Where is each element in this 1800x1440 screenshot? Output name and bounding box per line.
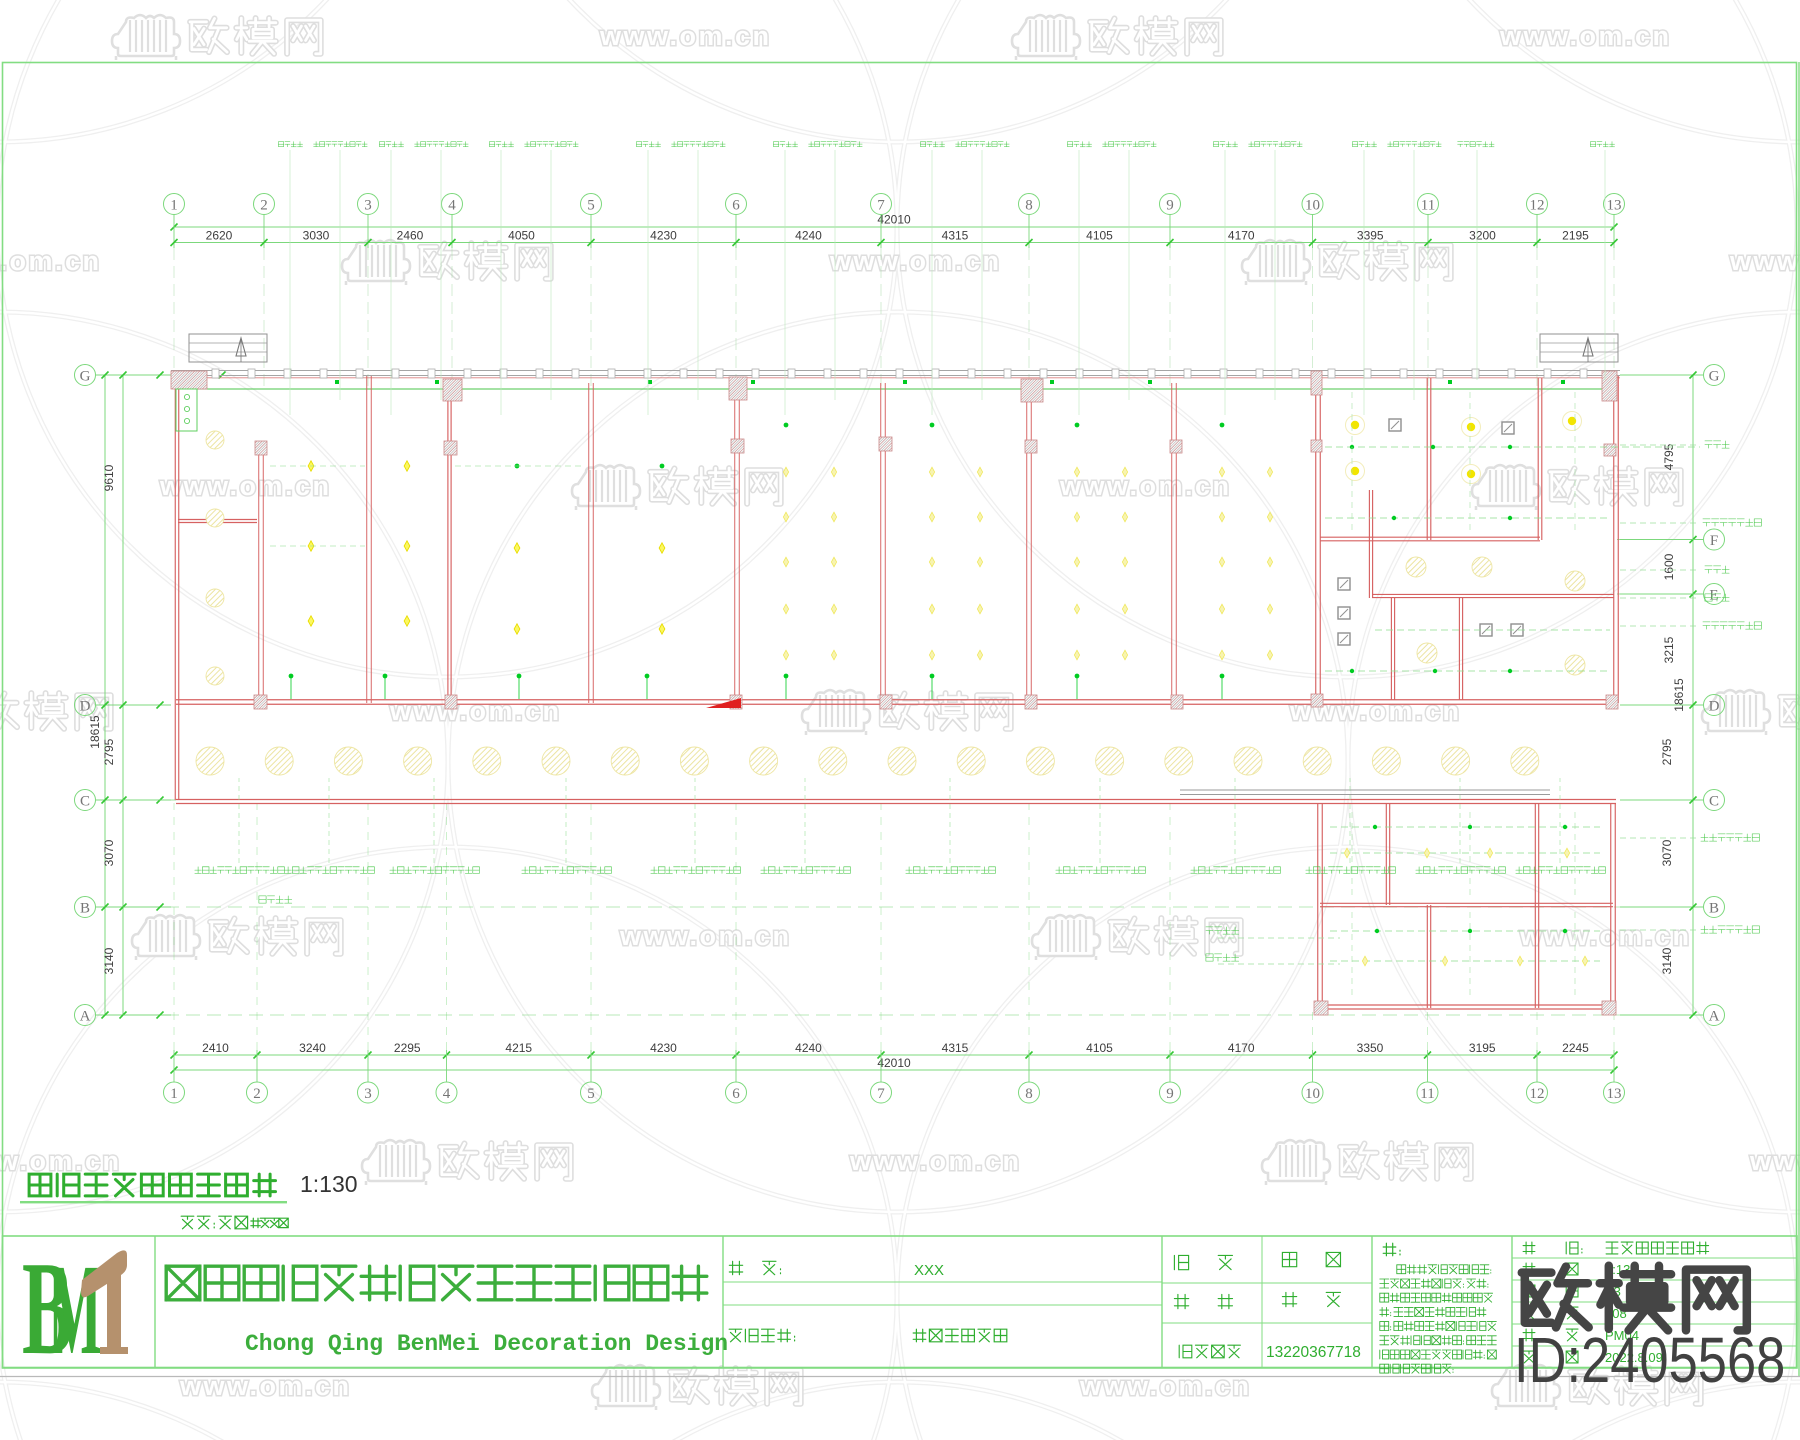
svg-text:4240: 4240 bbox=[795, 229, 822, 243]
svg-text:2: 2 bbox=[260, 198, 268, 214]
svg-text:13: 13 bbox=[1607, 198, 1622, 214]
svg-text:2795: 2795 bbox=[102, 738, 116, 765]
svg-text:5: 5 bbox=[587, 198, 595, 214]
svg-text:1: 1 bbox=[170, 198, 178, 214]
svg-text:G: G bbox=[80, 369, 91, 385]
svg-text:Chong Qing BenMei Decoration D: Chong Qing BenMei Decoration Design bbox=[245, 1331, 728, 1357]
svg-text:G: G bbox=[1709, 369, 1720, 385]
svg-text:2: 2 bbox=[253, 1086, 261, 1102]
svg-text:4315: 4315 bbox=[942, 1041, 969, 1055]
svg-text:4230: 4230 bbox=[650, 229, 677, 243]
svg-text:www.om.cn: www.om.cn bbox=[389, 696, 562, 726]
svg-text:9: 9 bbox=[1166, 1086, 1174, 1102]
svg-text:www.om.cn: www.om.cn bbox=[619, 921, 792, 951]
svg-text:13220367718: 13220367718 bbox=[1266, 1344, 1361, 1361]
svg-text:3: 3 bbox=[364, 1086, 372, 1102]
svg-text:A: A bbox=[1709, 1009, 1720, 1025]
svg-text:3070: 3070 bbox=[102, 839, 116, 866]
svg-text:13: 13 bbox=[1607, 1086, 1622, 1102]
svg-text:7: 7 bbox=[877, 1086, 885, 1102]
svg-text:3395: 3395 bbox=[1357, 229, 1384, 243]
svg-text:www.om.cn: www.om.cn bbox=[599, 21, 772, 51]
svg-text:2295: 2295 bbox=[394, 1041, 421, 1055]
svg-text:4: 4 bbox=[443, 1086, 451, 1102]
svg-text:B: B bbox=[80, 901, 90, 917]
svg-text:4170: 4170 bbox=[1228, 229, 1255, 243]
svg-text:1: 1 bbox=[170, 1086, 178, 1102]
svg-text:3350: 3350 bbox=[1357, 1041, 1384, 1055]
svg-text:ID:2405568: ID:2405568 bbox=[1514, 1325, 1785, 1396]
svg-text:8: 8 bbox=[1025, 1086, 1033, 1102]
svg-text:12: 12 bbox=[1530, 198, 1545, 214]
svg-text:5: 5 bbox=[587, 1086, 595, 1102]
svg-text:9610: 9610 bbox=[102, 464, 116, 491]
svg-text:2245: 2245 bbox=[1562, 1041, 1589, 1055]
svg-text:4230: 4230 bbox=[650, 1041, 677, 1055]
svg-text:4215: 4215 bbox=[505, 1041, 532, 1055]
svg-text:www.om.cn: www.om.cn bbox=[0, 246, 102, 276]
svg-text:A: A bbox=[80, 1009, 91, 1025]
svg-text:F: F bbox=[1710, 533, 1718, 549]
svg-text:6: 6 bbox=[732, 1086, 740, 1102]
svg-text:3240: 3240 bbox=[299, 1041, 326, 1055]
svg-text:www.om.cn: www.om.cn bbox=[829, 246, 1002, 276]
svg-text:D: D bbox=[1709, 699, 1720, 715]
svg-text:9: 9 bbox=[1166, 198, 1174, 214]
svg-text:3: 3 bbox=[364, 198, 372, 214]
svg-text:3140: 3140 bbox=[1660, 947, 1674, 974]
svg-text:2195: 2195 bbox=[1562, 229, 1589, 243]
svg-text:www.om.cn: www.om.cn bbox=[1729, 246, 1800, 276]
svg-text:10: 10 bbox=[1305, 198, 1320, 214]
svg-text:4050: 4050 bbox=[508, 229, 535, 243]
svg-text:4170: 4170 bbox=[1228, 1041, 1255, 1055]
svg-text:D: D bbox=[80, 699, 91, 715]
svg-text:1:130: 1:130 bbox=[300, 1171, 358, 1197]
svg-text:3215: 3215 bbox=[1662, 636, 1676, 663]
svg-text:1600: 1600 bbox=[1662, 553, 1676, 580]
svg-text:www.om.cn: www.om.cn bbox=[1059, 471, 1232, 501]
svg-text:2410: 2410 bbox=[202, 1041, 229, 1055]
svg-text:3200: 3200 bbox=[1469, 229, 1496, 243]
svg-text:4105: 4105 bbox=[1086, 1041, 1113, 1055]
svg-text:www.om.cn: www.om.cn bbox=[179, 1371, 352, 1401]
svg-text:4240: 4240 bbox=[795, 1041, 822, 1055]
svg-text:3195: 3195 bbox=[1469, 1041, 1496, 1055]
svg-text:7: 7 bbox=[877, 198, 885, 214]
svg-text:XXX: XXX bbox=[914, 1262, 944, 1279]
svg-text:C: C bbox=[1709, 794, 1719, 810]
svg-text:C: C bbox=[80, 794, 90, 810]
svg-text:8: 8 bbox=[1025, 198, 1033, 214]
svg-text:42010: 42010 bbox=[877, 213, 911, 227]
svg-text:M: M bbox=[48, 1238, 102, 1382]
svg-text:2795: 2795 bbox=[1660, 738, 1674, 765]
svg-text:11: 11 bbox=[1421, 198, 1435, 214]
svg-text:18615: 18615 bbox=[1672, 678, 1686, 712]
svg-text:11: 11 bbox=[1420, 1086, 1434, 1102]
svg-text:www.om.cn: www.om.cn bbox=[1519, 921, 1692, 951]
svg-text:10: 10 bbox=[1305, 1086, 1320, 1102]
svg-text:4: 4 bbox=[448, 198, 456, 214]
svg-text:18615: 18615 bbox=[88, 715, 102, 749]
svg-text:www.om.cn: www.om.cn bbox=[1079, 1371, 1252, 1401]
svg-text:4315: 4315 bbox=[942, 229, 969, 243]
svg-text:2460: 2460 bbox=[397, 229, 424, 243]
svg-text:www.om.cn: www.om.cn bbox=[159, 471, 332, 501]
svg-text:2620: 2620 bbox=[206, 229, 233, 243]
svg-text:www.om.cn: www.om.cn bbox=[0, 1146, 122, 1176]
svg-text:3030: 3030 bbox=[303, 229, 330, 243]
svg-text:12: 12 bbox=[1530, 1086, 1545, 1102]
svg-text:4105: 4105 bbox=[1086, 229, 1113, 243]
svg-text:B: B bbox=[1709, 901, 1719, 917]
svg-text:42010: 42010 bbox=[877, 1056, 911, 1070]
svg-text:6: 6 bbox=[732, 198, 740, 214]
svg-text:3140: 3140 bbox=[102, 947, 116, 974]
svg-text:www.om.cn: www.om.cn bbox=[1749, 1146, 1800, 1176]
svg-text:3070: 3070 bbox=[1660, 839, 1674, 866]
svg-text:www.om.cn: www.om.cn bbox=[849, 1146, 1022, 1176]
svg-text:www.om.cn: www.om.cn bbox=[1499, 21, 1672, 51]
